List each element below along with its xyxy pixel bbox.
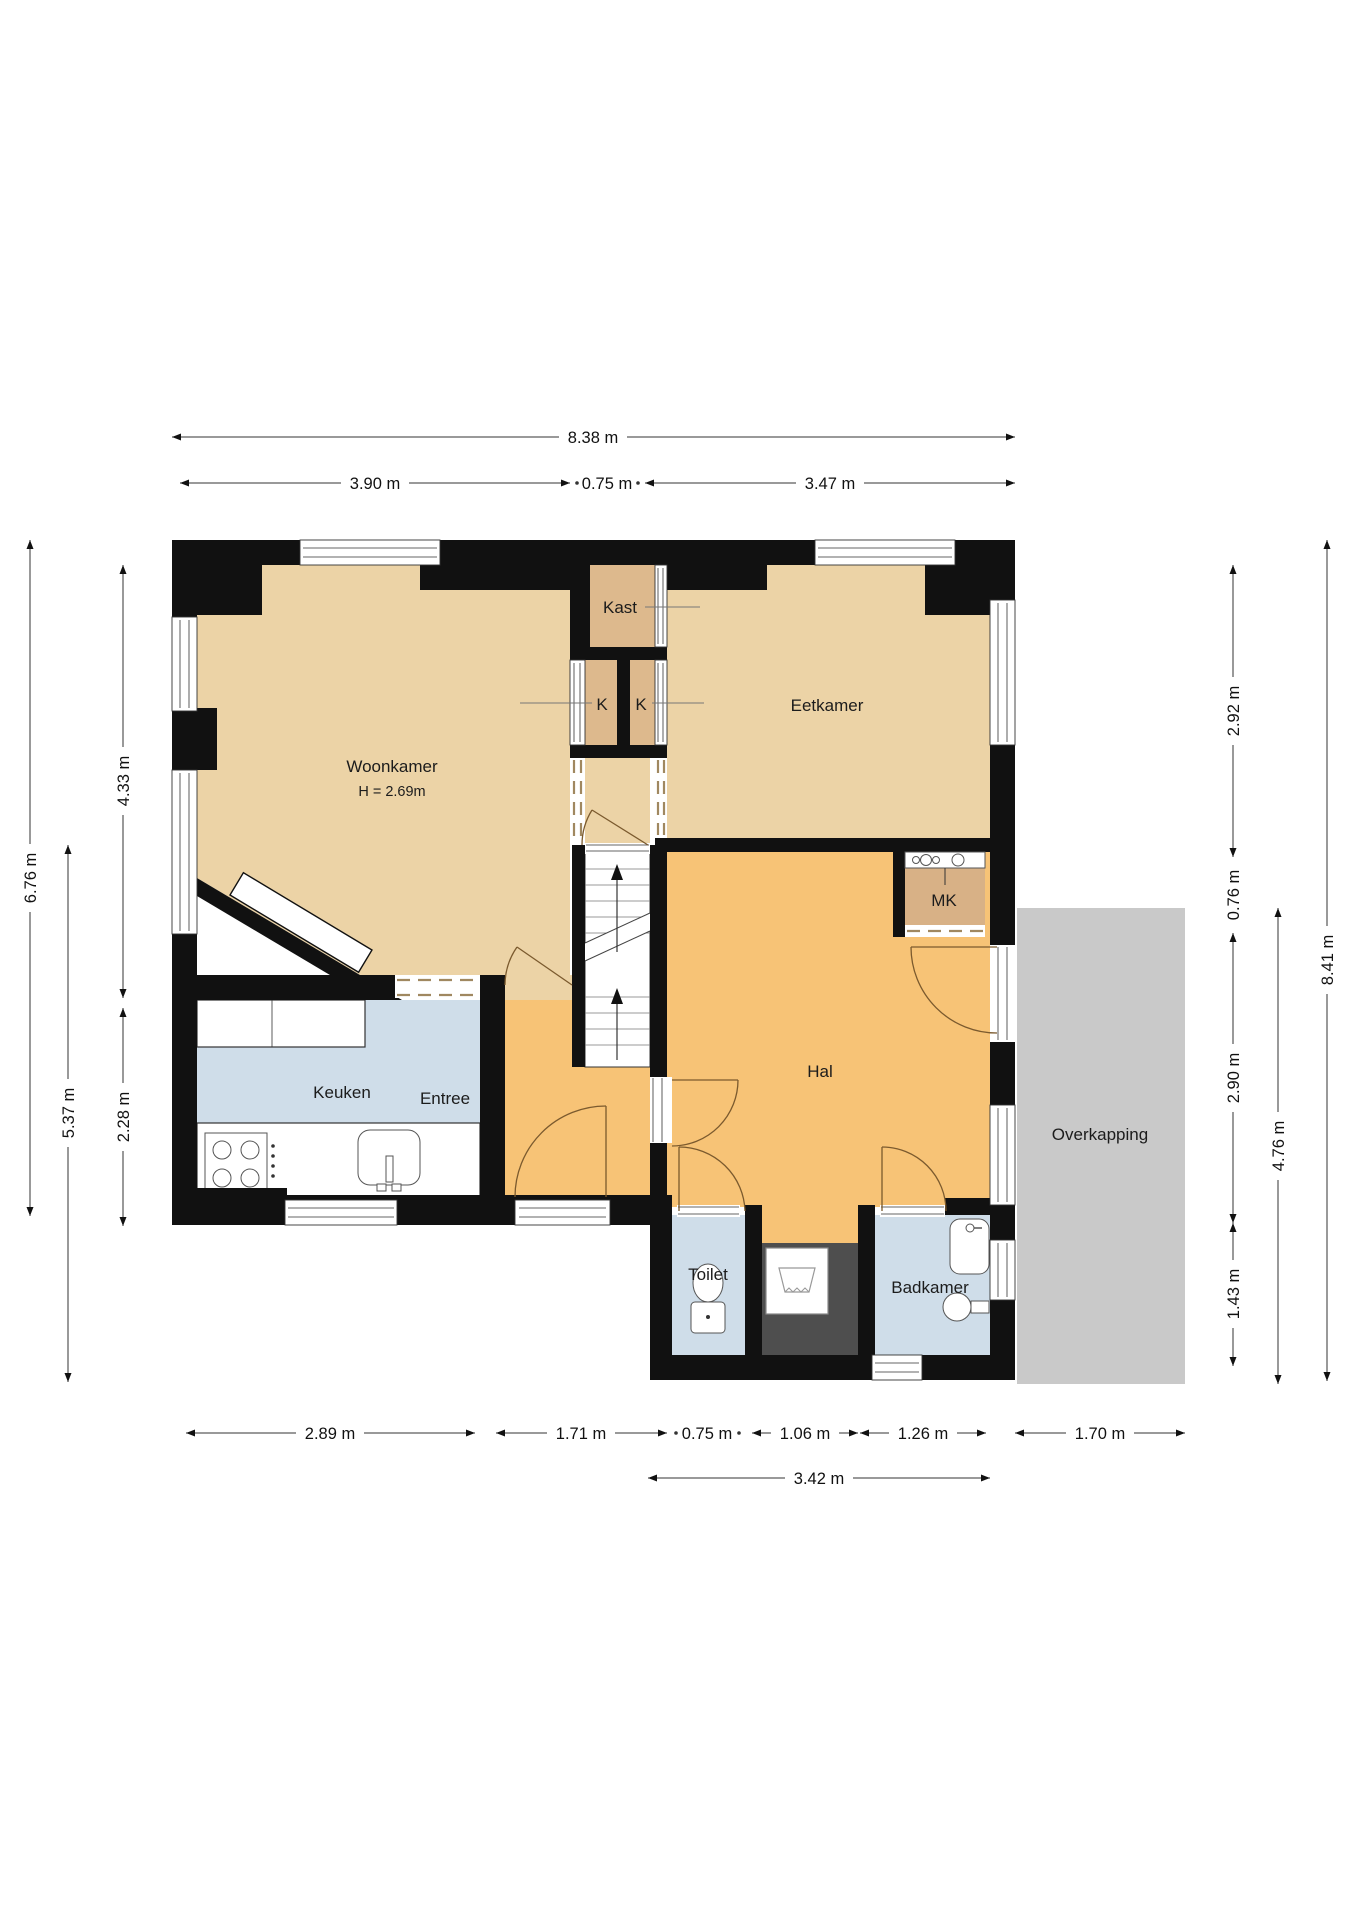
room-overkapping [1017, 908, 1185, 1384]
label-keuken: Keuken [313, 1083, 371, 1102]
dim-bottom-342: 3.42 m [648, 1467, 990, 1488]
svg-text:8.41 m: 8.41 m [1319, 935, 1337, 985]
svg-text:2.90 m: 2.90 m [1225, 1053, 1243, 1103]
dim-right-841: 8.41 m [1316, 540, 1337, 1381]
stove-icon [205, 1133, 275, 1195]
label-toilet: Toilet [688, 1265, 728, 1284]
window [172, 617, 197, 711]
dim-left-537: 5.37 m [57, 845, 78, 1382]
window [990, 1240, 1015, 1300]
svg-text:3.42 m: 3.42 m [794, 1470, 844, 1488]
dim-right-476: 4.76 m [1267, 908, 1288, 1384]
svg-text:0.75 m: 0.75 m [582, 475, 632, 493]
hal-niche-approach [762, 1207, 858, 1243]
window [285, 1200, 397, 1225]
floorplan-canvas: Woonkamer H = 2.69m Eetkamer Kast K K Ke… [0, 0, 1358, 1920]
dim-top-1: 3.90 m [180, 472, 570, 493]
label-k-right: K [635, 695, 647, 714]
window [655, 660, 667, 745]
label-k-left: K [596, 695, 608, 714]
opening-passage-right [655, 758, 667, 837]
label-overkapping: Overkapping [1052, 1125, 1148, 1144]
dim-bottom-075: 0.75 m [673, 1422, 741, 1443]
svg-text:2.89 m: 2.89 m [305, 1425, 355, 1443]
svg-text:2.92 m: 2.92 m [1225, 686, 1243, 736]
dim-right-076: 0.76 m [1222, 861, 1243, 929]
label-woonkamer-height: H = 2.69m [358, 784, 425, 800]
label-mk: MK [931, 891, 957, 910]
opening-keuken [395, 977, 480, 998]
svg-text:0.76 m: 0.76 m [1225, 870, 1243, 920]
bathtub-icon [950, 1219, 989, 1274]
label-eetkamer: Eetkamer [791, 696, 864, 715]
label-badkamer: Badkamer [891, 1278, 969, 1297]
dim-left-433: 4.33 m [112, 565, 133, 998]
dim-right-143: 1.43 m [1222, 1223, 1243, 1366]
svg-text:6.76 m: 6.76 m [22, 853, 40, 903]
dim-top-total: 8.38 m [172, 426, 1015, 447]
dim-right-290: 2.90 m [1222, 933, 1243, 1223]
window [990, 600, 1015, 745]
dim-bottom-170: 1.70 m [1015, 1422, 1185, 1443]
svg-text:3.47 m: 3.47 m [805, 475, 855, 493]
svg-text:1.26 m: 1.26 m [898, 1425, 948, 1443]
dim-top-3: 3.47 m [645, 472, 1015, 493]
floorplan-page: Woonkamer H = 2.69m Eetkamer Kast K K Ke… [0, 0, 1358, 1920]
doormat-icon [766, 1248, 828, 1314]
dim-bottom-171: 1.71 m [496, 1422, 667, 1443]
label-kast: Kast [603, 598, 637, 617]
opening-mk-dashed-door [905, 925, 985, 937]
label-hal: Hal [807, 1062, 833, 1081]
passage-floor [585, 758, 650, 845]
dim-left-676: 6.76 m [19, 540, 40, 1216]
dim-bottom-289: 2.89 m [186, 1422, 475, 1443]
label-entree: Entree [420, 1089, 470, 1108]
window [172, 770, 197, 934]
svg-text:1.43 m: 1.43 m [1225, 1269, 1243, 1319]
dim-bottom-126: 1.26 m [860, 1422, 986, 1443]
svg-text:4.76 m: 4.76 m [1270, 1121, 1288, 1171]
svg-text:0.75 m: 0.75 m [682, 1425, 732, 1443]
opening-passage-left [570, 758, 585, 843]
svg-text:1.06 m: 1.06 m [780, 1425, 830, 1443]
window [815, 540, 955, 565]
kitchen-sink-icon [358, 1130, 420, 1191]
niche-doormat [766, 1248, 828, 1314]
svg-text:3.90 m: 3.90 m [350, 475, 400, 493]
dim-top-2: 0.75 m [573, 472, 641, 493]
label-woonkamer: Woonkamer [346, 757, 438, 776]
window [300, 540, 440, 565]
dim-right-292: 2.92 m [1222, 565, 1243, 857]
dim-bottom-106: 1.06 m [752, 1422, 858, 1443]
window [570, 660, 585, 745]
svg-text:8.38 m: 8.38 m [568, 429, 618, 447]
svg-text:2.28 m: 2.28 m [115, 1092, 133, 1142]
dim-left-228: 2.28 m [112, 1008, 133, 1226]
svg-text:1.71 m: 1.71 m [556, 1425, 606, 1443]
window [990, 1105, 1015, 1205]
svg-text:4.33 m: 4.33 m [115, 756, 133, 806]
stairs [585, 852, 650, 1067]
window [872, 1355, 922, 1380]
svg-text:1.70 m: 1.70 m [1075, 1425, 1125, 1443]
window [655, 565, 667, 647]
svg-text:5.37 m: 5.37 m [60, 1088, 78, 1138]
kitchen-counter-top [197, 1000, 365, 1047]
